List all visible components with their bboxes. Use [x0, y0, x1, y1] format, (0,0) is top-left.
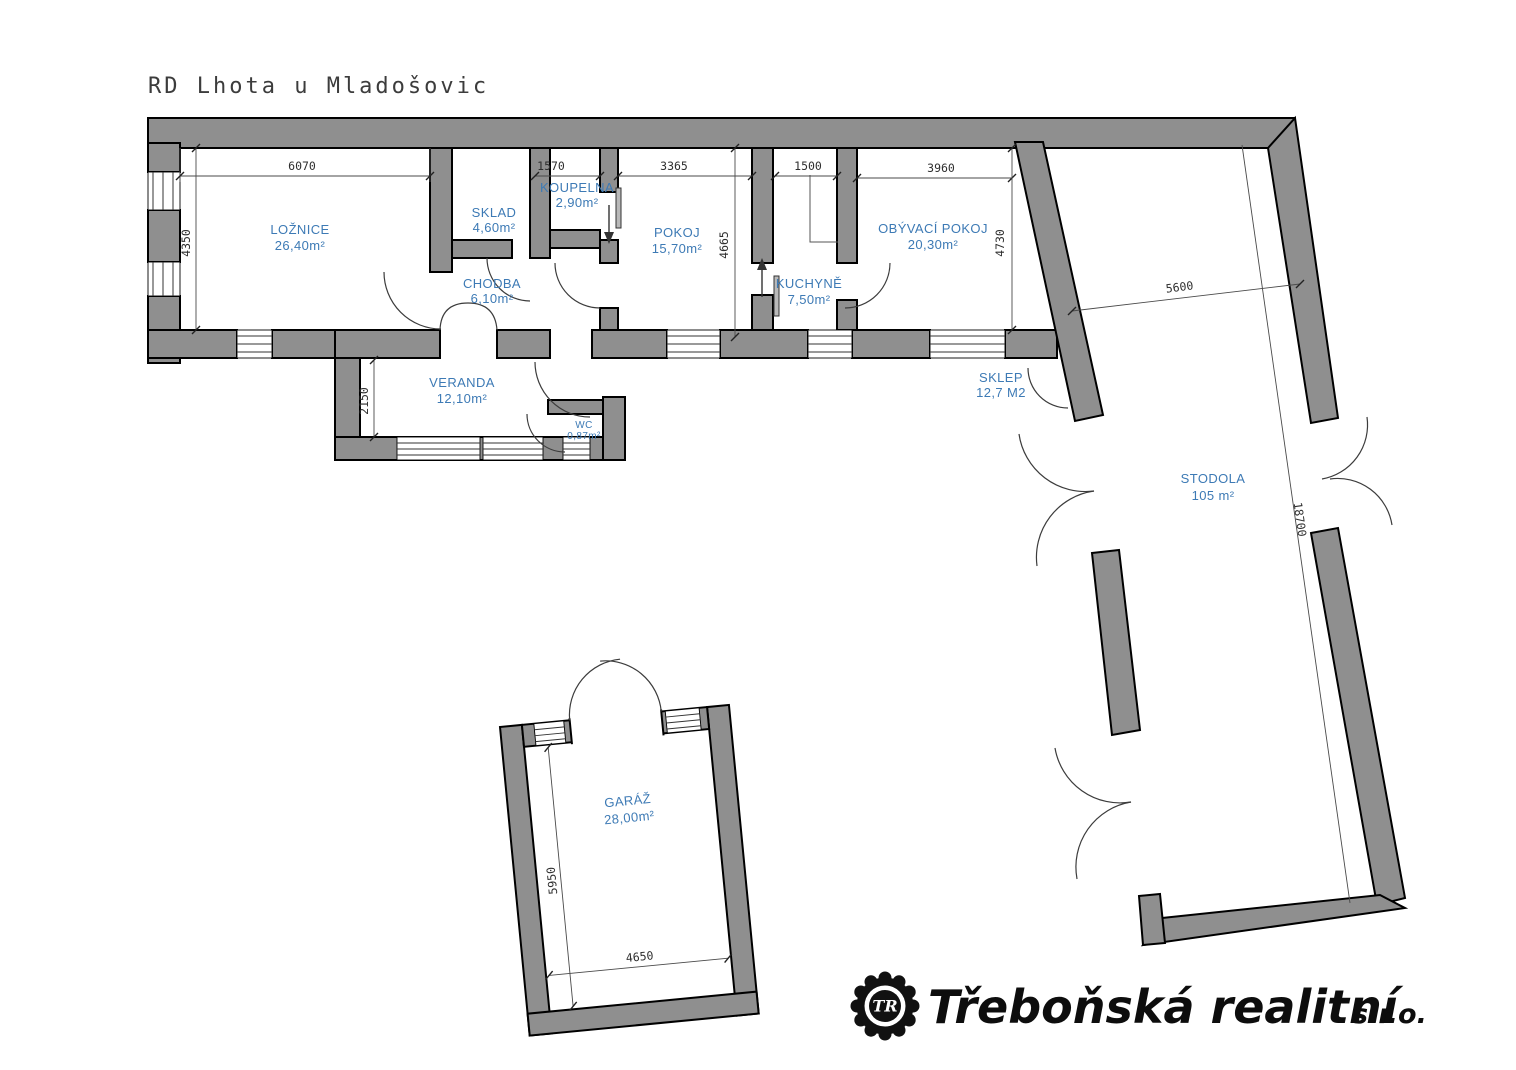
plan-title: RD Lhota u Mladošovic	[148, 74, 489, 99]
wall	[1092, 550, 1140, 735]
dim-pokoj-width: 3365	[660, 159, 688, 173]
room-label-loznice: LOŽNICE	[270, 222, 329, 237]
window	[534, 721, 566, 746]
wall	[600, 308, 618, 330]
logo-company-suffix: s.r.o.	[1352, 999, 1427, 1030]
room-label-chodba: CHODBA	[463, 276, 521, 291]
room-label-veranda: VERANDA	[429, 375, 495, 390]
logo-company-name: Třeboňská realitní	[928, 980, 1404, 1034]
wall	[592, 330, 667, 358]
window	[808, 330, 852, 358]
garage: 5950 4650 GARÁŽ 28,00m²	[495, 649, 759, 1035]
dim-garaz-height: 5950	[544, 866, 561, 895]
logo-gear-icon: TR	[851, 972, 920, 1041]
floor-plan-drawing: RD Lhota u Mladošovic	[0, 0, 1516, 1070]
room-area-sklad: 4,60m²	[473, 220, 516, 235]
window	[665, 708, 701, 733]
room-area-loznice: 26,40m²	[275, 238, 326, 253]
wall	[603, 397, 625, 460]
window	[148, 262, 180, 296]
wall	[500, 725, 552, 1036]
stodola-walls	[1092, 118, 1405, 945]
wall	[720, 330, 808, 358]
door-arc	[1330, 478, 1392, 525]
wall	[837, 148, 857, 263]
wall	[1268, 118, 1338, 423]
dim-stodola-length: 18700	[1291, 501, 1310, 537]
door-arc	[1076, 802, 1131, 879]
wall	[837, 300, 857, 330]
window	[667, 330, 720, 358]
floor-plan-page: RD Lhota u Mladošovic	[0, 0, 1516, 1070]
dim-stodola-width: 5600	[1165, 278, 1194, 295]
room-area-garaz: 28,00m²	[603, 808, 655, 828]
room-area-kuchyne: 7,50m²	[788, 292, 831, 307]
wall	[452, 240, 512, 258]
room-area-wc: 0,87m²	[567, 431, 601, 442]
wall	[148, 143, 180, 172]
kitchen-flue	[810, 175, 838, 242]
wall	[707, 705, 759, 1016]
door-arc	[1028, 368, 1068, 408]
door-arc	[600, 656, 661, 717]
dim-veranda-height: 2150	[357, 387, 371, 415]
window	[237, 330, 272, 358]
door-arc	[1322, 417, 1368, 479]
dim-obyvaci-height: 4730	[993, 229, 1007, 257]
windows	[148, 172, 1005, 460]
door-arc	[1019, 434, 1094, 492]
wall	[335, 330, 440, 358]
wall	[752, 295, 773, 330]
door-arc	[440, 303, 468, 330]
dim-loznice-width: 6070	[288, 159, 316, 173]
dim-loznice-height: 4350	[179, 229, 193, 257]
stairs-down-arrow	[604, 205, 614, 244]
dim-koupelna-width: 1570	[537, 159, 565, 173]
company-logo: TR Třeboňská realitní s.r.o.	[851, 972, 1427, 1041]
dim-kuchyne-width: 1500	[794, 159, 822, 173]
window	[397, 437, 480, 460]
window	[148, 172, 180, 210]
wall	[550, 230, 600, 248]
room-area-veranda: 12,10m²	[437, 391, 488, 406]
wall	[548, 400, 607, 414]
wall	[1015, 142, 1103, 421]
wall	[752, 148, 773, 263]
room-label-wc: WC	[575, 420, 592, 431]
doors	[384, 188, 1392, 879]
room-label-sklep: SKLEP	[979, 370, 1023, 385]
wall	[1143, 895, 1405, 945]
wall	[430, 148, 452, 272]
house-walls	[148, 118, 1295, 421]
wall	[272, 330, 335, 358]
room-area-chodba: 6,10m²	[471, 291, 514, 306]
window	[930, 330, 1005, 358]
wall	[1139, 894, 1165, 945]
dim-garaz-width: 4650	[625, 948, 654, 965]
room-label-obyvaci: OBÝVACÍ POKOJ	[878, 221, 988, 236]
door-arc	[384, 272, 441, 329]
room-label-sklad: SKLAD	[472, 205, 517, 220]
door-arc	[1036, 491, 1094, 566]
dim-pokoj-height: 4665	[717, 231, 731, 259]
wall	[497, 330, 550, 358]
room-area-sklep: 12,7 M2	[976, 385, 1026, 400]
door-arc	[555, 263, 600, 308]
wall	[528, 992, 759, 1036]
room-area-obyvaci: 20,30m²	[908, 237, 959, 252]
door-arc	[1055, 748, 1131, 803]
dim-obyvaci-width: 3960	[927, 161, 955, 175]
room-label-stodola: STODOLA	[1181, 471, 1246, 486]
wall	[852, 330, 930, 358]
room-area-stodola: 105 m²	[1192, 488, 1235, 503]
room-label-koupelna: KOUPELNA	[540, 180, 614, 195]
door-arc	[564, 659, 625, 720]
room-area-pokoj: 15,70m²	[652, 241, 703, 256]
room-area-koupelna: 2,90m²	[556, 195, 599, 210]
window	[483, 437, 543, 460]
door-arc	[468, 303, 497, 330]
room-label-kuchyne: KUCHYNĚ	[776, 276, 842, 291]
logo-monogram: TR	[872, 997, 897, 1016]
wall	[1311, 528, 1405, 905]
door-leaf	[616, 188, 621, 228]
room-label-pokoj: POKOJ	[654, 225, 700, 240]
wall	[148, 118, 1295, 148]
wall	[1005, 330, 1057, 358]
room-label-garaz: GARÁŽ	[604, 791, 652, 810]
garage-door-opening	[569, 709, 663, 744]
wall	[148, 210, 180, 262]
